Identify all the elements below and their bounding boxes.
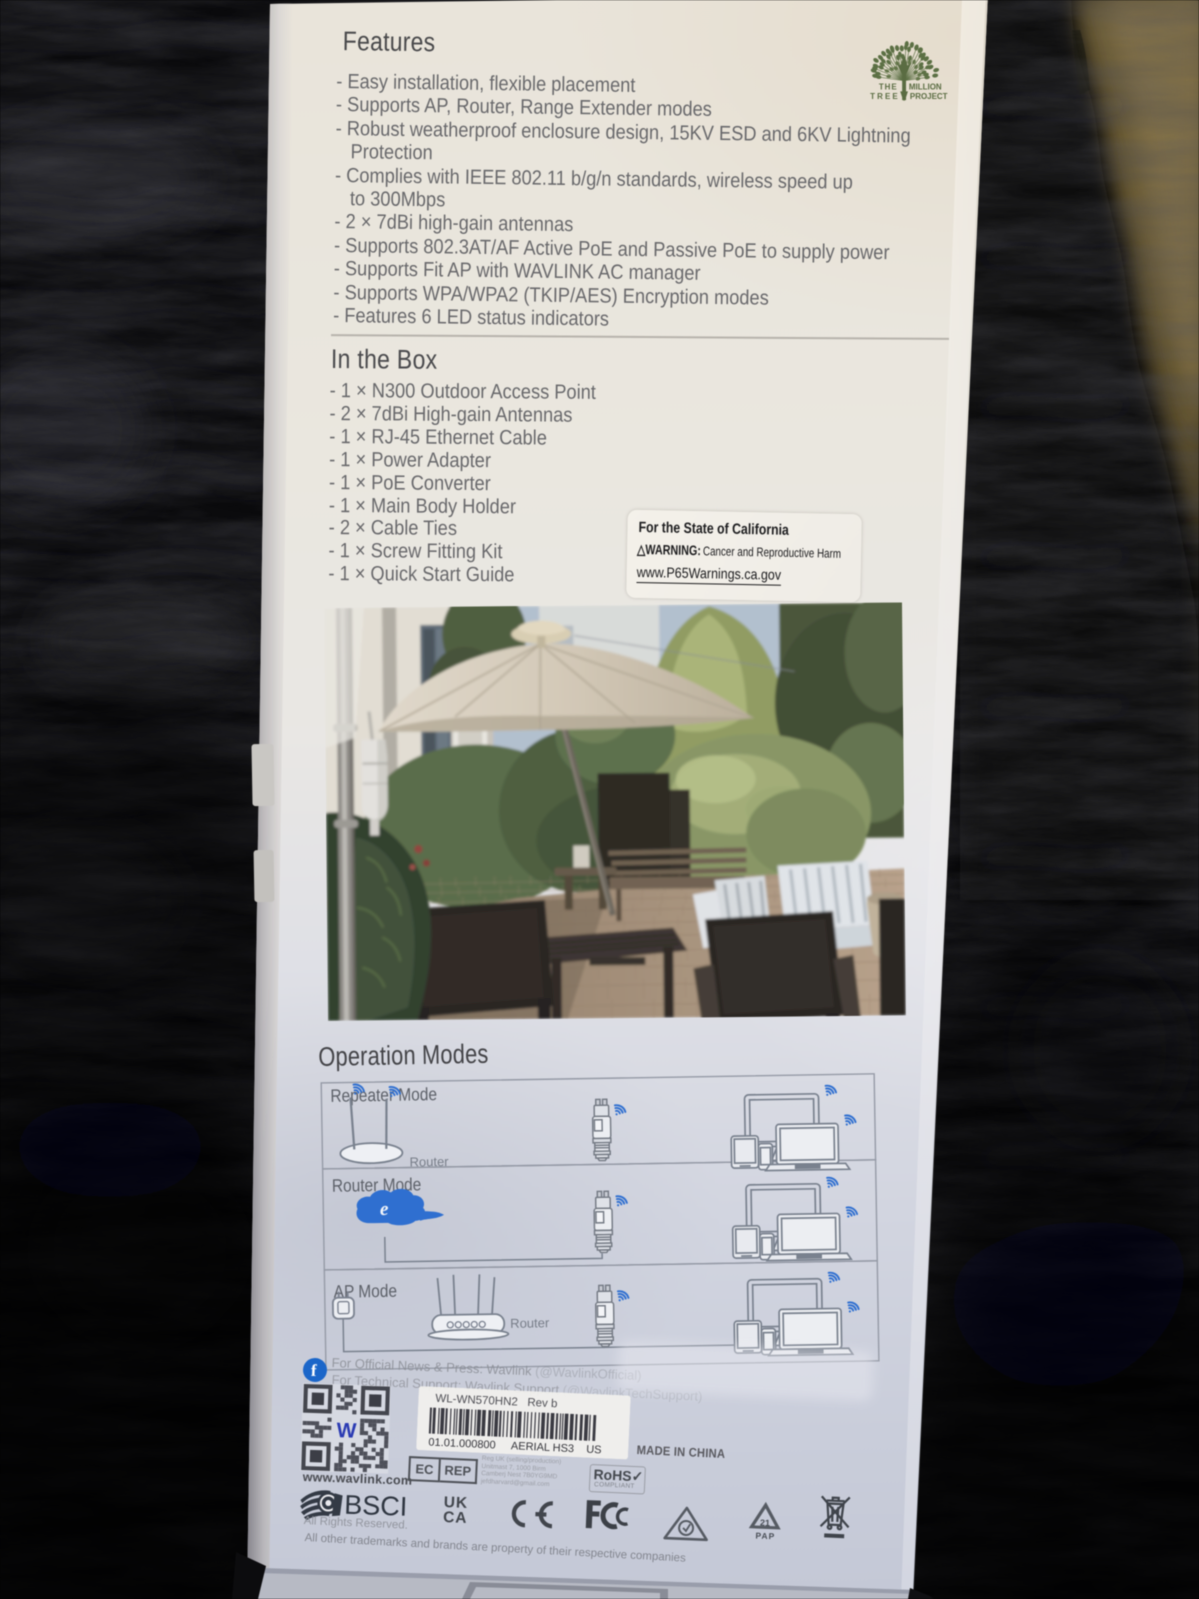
svg-text:PROJECT: PROJECT — [910, 92, 948, 101]
svg-text:Repeater Mode: Repeater Mode — [330, 1084, 437, 1106]
svg-text:THE: THE — [879, 82, 898, 91]
svg-text:Router: Router — [409, 1154, 449, 1170]
svg-text:Router: Router — [510, 1315, 550, 1331]
svg-text:TREE: TREE — [870, 92, 900, 101]
svg-text:21: 21 — [760, 1518, 770, 1528]
svg-text:MILLION: MILLION — [909, 82, 942, 91]
svg-text:e: e — [380, 1199, 389, 1220]
svg-text:W: W — [336, 1419, 357, 1443]
